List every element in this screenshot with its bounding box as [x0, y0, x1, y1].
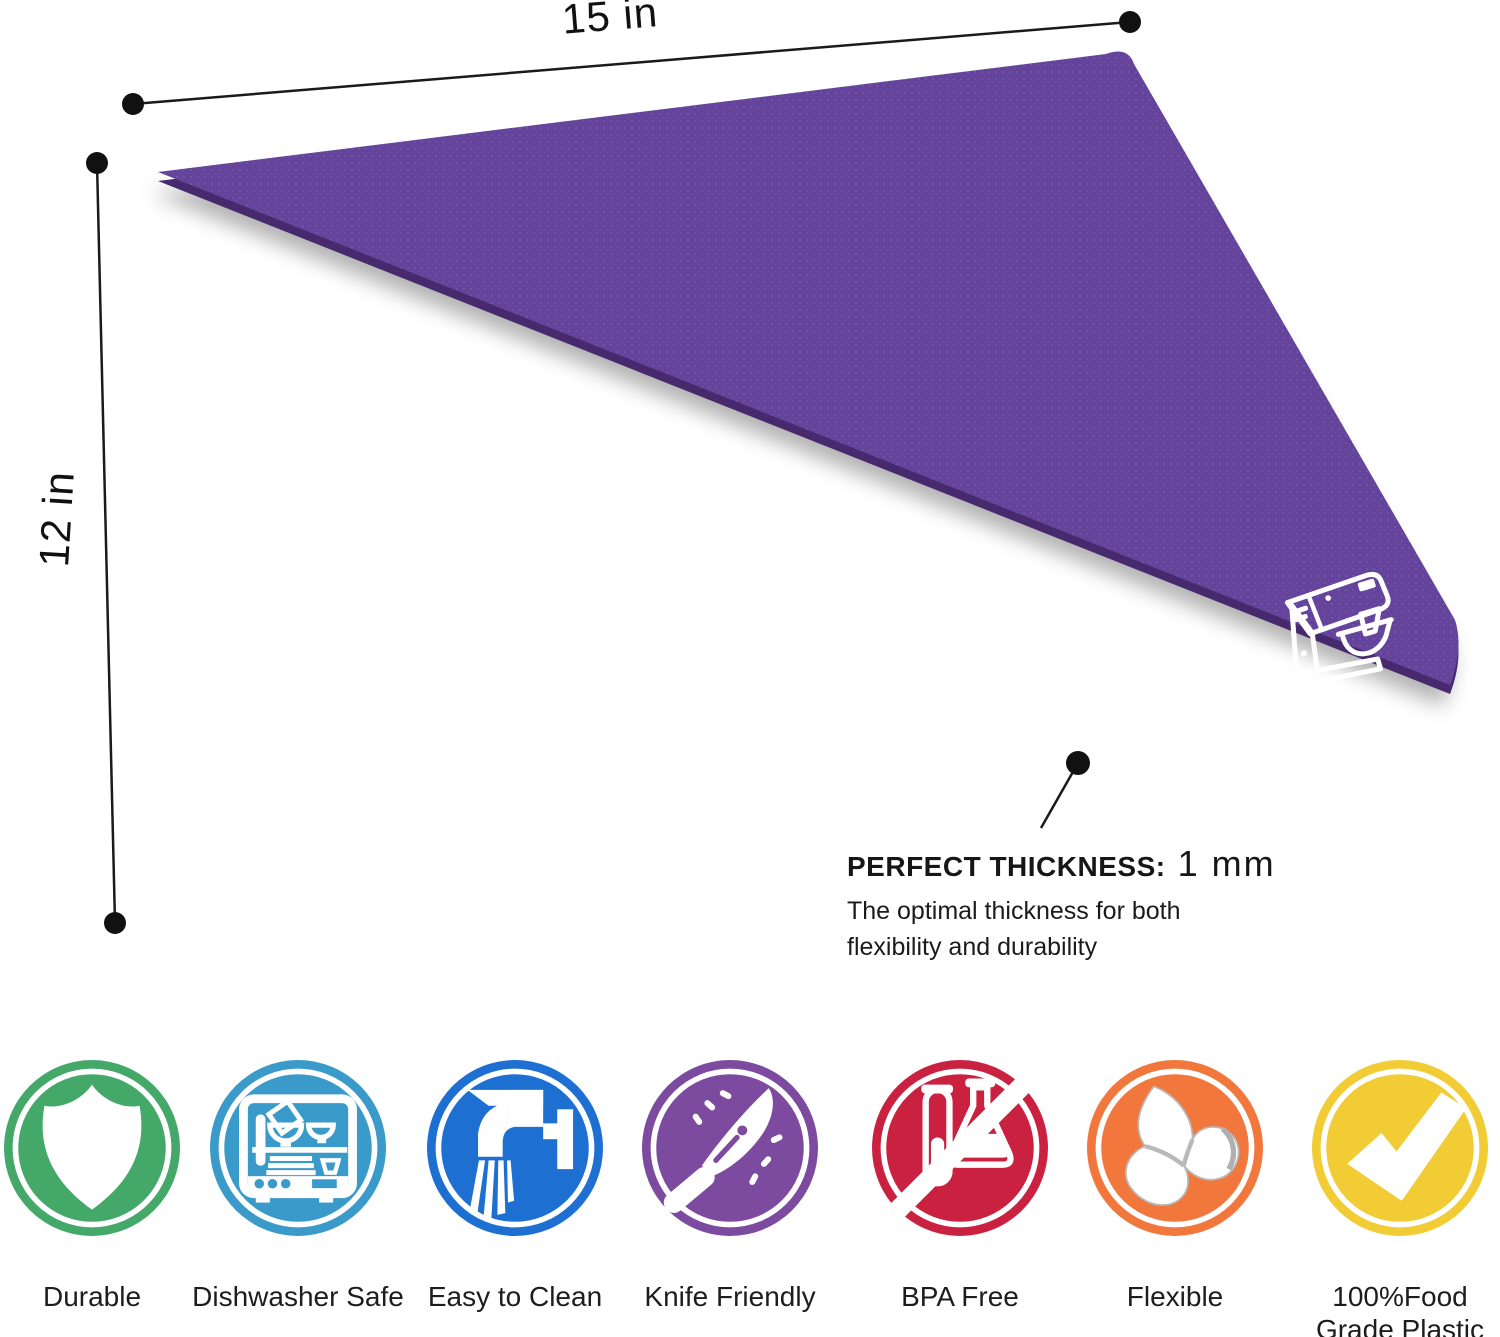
thickness-callout: PERFECT THICKNESS:1 mm The optimal thick… [847, 843, 1277, 965]
thickness-callout-description: The optimal thickness for both flexibili… [847, 893, 1277, 965]
thickness-callout-value: 1 mm [1178, 843, 1276, 884]
feature-label-dishwasher-safe: Dishwasher Safe [178, 1280, 418, 1313]
thickness-callout-leader [1041, 751, 1090, 828]
feature-label-bpa-free: BPA Free [840, 1280, 1080, 1313]
feature-badge-flexible [1087, 1060, 1263, 1236]
dimension-endpoint-dot [122, 93, 144, 115]
product-diagram: 15 in 12 in PERFECT THICKNESS:1 mm The o… [0, 0, 1500, 1337]
feature-badge-dishwasher-safe [210, 1060, 386, 1236]
feature-label-food-grade: 100%Food Grade Plastic [1280, 1280, 1500, 1337]
mixer-base [1290, 659, 1381, 687]
dimension-endpoint-dot [1119, 11, 1141, 33]
callout-dot [1066, 751, 1090, 775]
feature-label-easy-to-clean: Easy to Clean [395, 1280, 635, 1313]
dimension-endpoint-dot [104, 912, 126, 934]
height-dimension-line [86, 152, 126, 934]
thickness-desc-line2: flexibility and durability [847, 929, 1277, 965]
dimension-endpoint-dot [86, 152, 108, 174]
feature-badge-bpa-free [872, 1060, 1048, 1236]
feature-badge-durable [4, 1060, 180, 1236]
feature-badge-food-grade [1312, 1060, 1488, 1236]
thickness-callout-title: PERFECT THICKNESS: [847, 851, 1166, 882]
feature-label-knife-friendly: Knife Friendly [610, 1280, 850, 1313]
thickness-callout-heading: PERFECT THICKNESS:1 mm [847, 843, 1277, 885]
feature-circle [427, 1060, 603, 1236]
feature-label-flexible: Flexible [1055, 1280, 1295, 1313]
thickness-desc-line1: The optimal thickness for both [847, 893, 1277, 929]
mixer-column-dot [1301, 650, 1308, 657]
feature-badge-knife-friendly [642, 1060, 818, 1236]
cutting-mat [158, 52, 1459, 685]
feature-badge-easy-to-clean [427, 1060, 603, 1236]
